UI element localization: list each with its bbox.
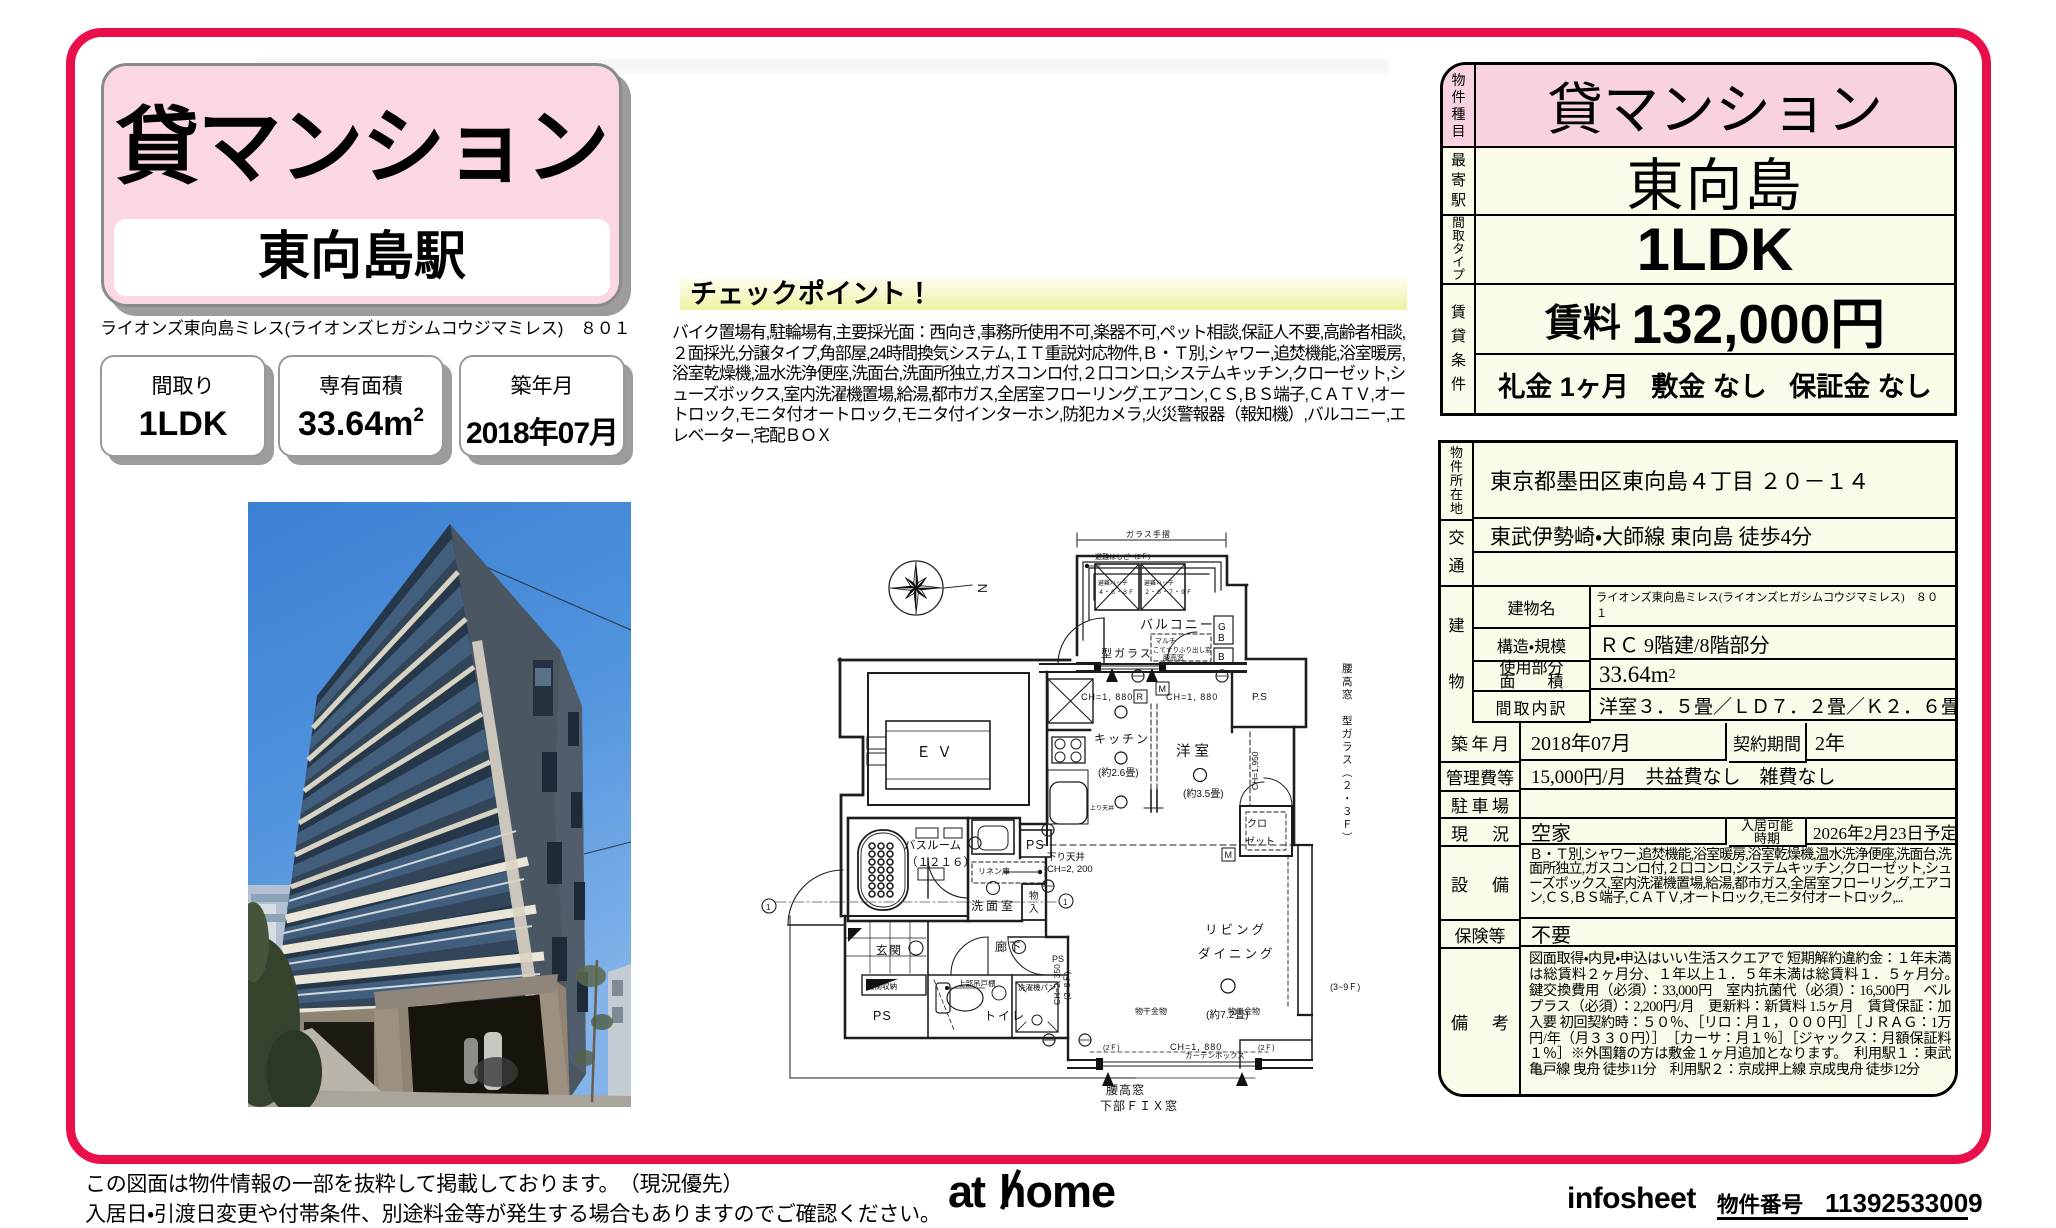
svg-text:腰高窓: 腰高窓	[1106, 1083, 1145, 1097]
svg-text:Ｆ: Ｆ	[1342, 819, 1353, 831]
svg-text:︵: ︵	[1342, 767, 1353, 779]
svg-text:洋室: 洋室	[1176, 743, 1213, 760]
svg-text:下部ＦＩＸ窓: 下部ＦＩＸ窓	[1100, 1099, 1178, 1113]
svg-text:バルコニー: バルコニー	[1140, 617, 1215, 632]
svg-text:PS: PS	[1026, 838, 1045, 852]
svg-text:リネン庫: リネン庫	[978, 866, 1010, 876]
svg-text:洗面室: 洗面室	[971, 899, 1016, 913]
svg-text:M: M	[1225, 850, 1233, 860]
svg-text:ラ: ラ	[1342, 741, 1353, 753]
svg-text:ゼット: ゼット	[1245, 836, 1275, 848]
svg-text:CH=1, 880: CH=1, 880	[1166, 692, 1218, 702]
svg-text:２・６・７・９Ｆ: ２・６・７・９Ｆ	[1144, 589, 1192, 596]
svg-text:CH=1,950: CH=1,950	[1250, 751, 1260, 790]
svg-text:下り天井: 下り天井	[1047, 851, 1085, 863]
svg-text:(2~8Ｆ): (2~8Ｆ)	[1062, 971, 1072, 1000]
svg-text:入: 入	[1029, 904, 1039, 915]
svg-text:M: M	[1159, 684, 1167, 694]
svg-text:PS: PS	[873, 1009, 892, 1023]
svg-text:物干金物: 物干金物	[1135, 1006, 1167, 1016]
svg-text:G: G	[1218, 622, 1226, 633]
svg-text:(約3.5畳): (約3.5畳)	[1183, 787, 1224, 800]
svg-text:R: R	[1137, 692, 1144, 702]
svg-text:(3~9Ｆ): (3~9Ｆ)	[1330, 982, 1360, 992]
svg-text:避難ハッチ: 避難ハッチ	[1098, 579, 1128, 587]
svg-text:B: B	[1218, 633, 1225, 644]
svg-text:型: 型	[1342, 714, 1353, 727]
svg-text:CH=2, 350: CH=2, 350	[1052, 964, 1062, 1005]
svg-text:トイレ: トイレ	[984, 1009, 1026, 1023]
svg-text:N: N	[975, 584, 990, 593]
svg-text:バスルーム: バスルーム	[904, 839, 961, 852]
svg-text:P.S: P.S	[1252, 692, 1267, 703]
svg-text:窓: 窓	[1342, 689, 1353, 701]
svg-text:玄関: 玄関	[876, 944, 903, 957]
svg-text:上部吊戸棚: 上部吊戸棚	[958, 978, 996, 988]
svg-text:上り天井: 上り天井	[1090, 804, 1114, 812]
svg-text:B: B	[1218, 652, 1225, 663]
svg-text:(2Ｆ): (2Ｆ)	[1103, 1043, 1120, 1052]
svg-text:避難はしご（2Ｆ）: 避難はしご（2Ｆ）	[1095, 552, 1155, 561]
svg-text:リビング: リビング	[1205, 923, 1267, 937]
svg-text:ス: ス	[1342, 754, 1353, 766]
svg-text:(約2.6畳): (約2.6畳)	[1098, 766, 1139, 779]
svg-text:２: ２	[1342, 780, 1353, 792]
svg-text:(2Ｆ): (2Ｆ)	[1258, 1043, 1275, 1052]
svg-text:マルチ: マルチ	[1155, 637, 1176, 645]
svg-text:クロ: クロ	[1247, 818, 1267, 830]
svg-text:PS: PS	[1052, 954, 1064, 964]
svg-text:腰高窓: 腰高窓	[1163, 653, 1184, 662]
svg-text:at: at	[948, 1168, 986, 1214]
svg-text:ガラス手摺: ガラス手摺	[1126, 529, 1171, 539]
svg-text:ガ: ガ	[1342, 728, 1353, 740]
svg-text:・: ・	[1342, 793, 1353, 805]
svg-text:キッチン: キッチン	[1094, 732, 1150, 746]
svg-text:CH=1, 880: CH=1, 880	[1081, 692, 1133, 702]
svg-text:３: ３	[1342, 806, 1353, 818]
svg-text:︶: ︶	[1342, 832, 1353, 844]
svg-text:腰: 腰	[1342, 663, 1353, 675]
svg-text:ダイニング: ダイニング	[1198, 946, 1276, 961]
svg-text:こてすりふり出し窓: こてすりふり出し窓	[1153, 645, 1212, 654]
svg-text:物: 物	[1029, 890, 1039, 902]
svg-text:1: 1	[1063, 898, 1068, 907]
svg-text:型ガラス: 型ガラス	[1101, 646, 1153, 660]
svg-text:ＥＶ: ＥＶ	[916, 744, 958, 761]
svg-text:避難ハッチ: 避難ハッチ	[1144, 579, 1174, 587]
svg-text:1: 1	[766, 903, 771, 912]
svg-text:玄関収納: 玄関収納	[867, 981, 897, 991]
svg-text:カーテンボックス: カーテンボックス	[1185, 1051, 1245, 1060]
svg-text:CH=2, 200: CH=2, 200	[1047, 864, 1093, 875]
svg-text:廊下: 廊下	[995, 940, 1023, 954]
svg-text:物干金物: 物干金物	[1228, 1006, 1260, 1016]
svg-text:洗濯機パン: 洗濯機パン	[1018, 982, 1056, 992]
svg-text:高: 高	[1342, 675, 1353, 688]
svg-text:（１２１６）: （１２１６）	[906, 856, 975, 869]
svg-text:４・６・８Ｆ: ４・６・８Ｆ	[1098, 589, 1134, 596]
